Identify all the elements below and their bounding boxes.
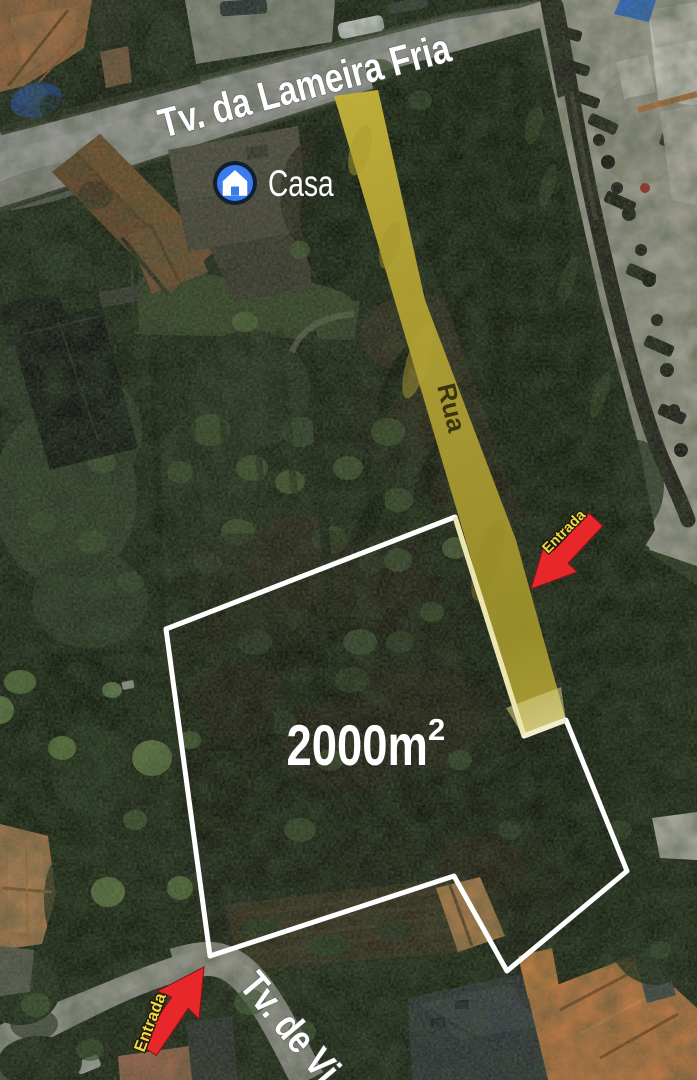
svg-text:2000m: 2000m — [287, 713, 428, 777]
svg-text:Casa: Casa — [268, 162, 334, 204]
svg-text:2: 2 — [428, 712, 445, 747]
